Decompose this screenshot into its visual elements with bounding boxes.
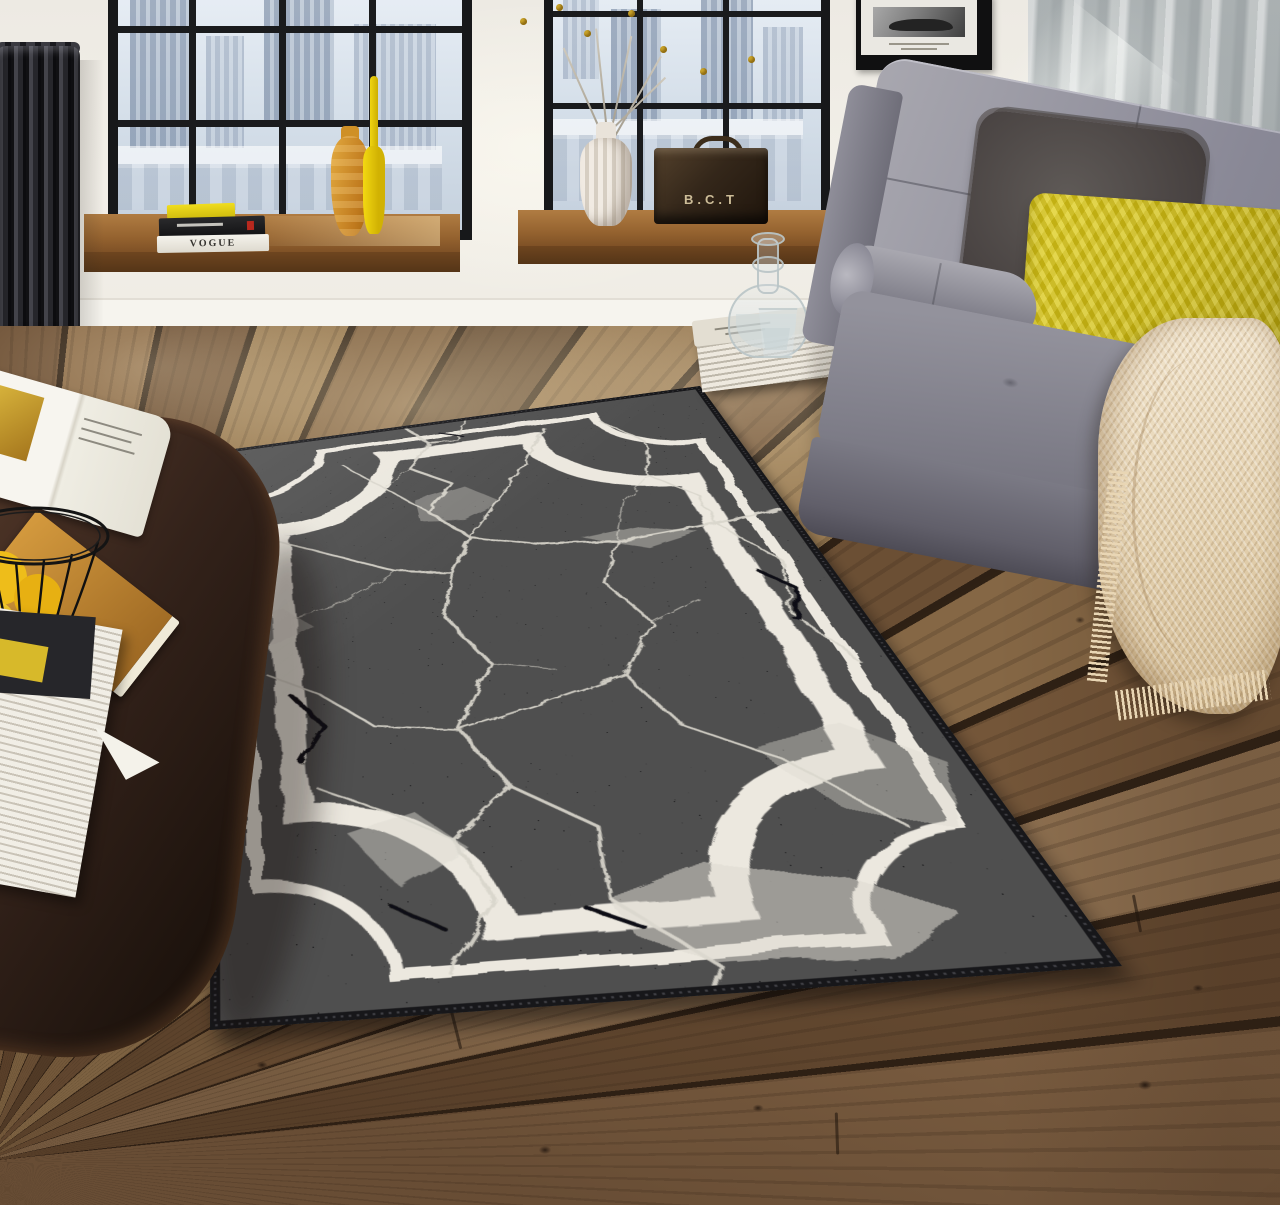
radiator: [0, 46, 80, 352]
yellow-bottle-neck: [370, 76, 378, 152]
window-muntin: [118, 26, 462, 33]
vogue-spine-text: VOGUE: [190, 238, 237, 250]
craspedia-bud: [660, 46, 667, 53]
city-building: [264, 0, 334, 120]
city-building: [206, 36, 244, 148]
box-label-text: B.C.T: [684, 192, 738, 207]
throw-fold: [1132, 358, 1265, 658]
window-muntin: [553, 103, 821, 109]
window-muntin: [279, 0, 286, 230]
glass-water: [762, 328, 790, 350]
decanter-ring: [752, 256, 784, 273]
white-vase: [580, 138, 632, 226]
window-muntin: [637, 0, 643, 219]
window-sill-edge: [518, 246, 844, 264]
vogue-book: VOGUE: [157, 234, 269, 253]
radiator-shadow: [78, 60, 104, 352]
book-spine-mark: [177, 223, 223, 227]
magazine-text-line: [84, 418, 142, 436]
craspedia-bud: [748, 56, 755, 63]
basket-rim: [0, 508, 108, 564]
window-sill-edge: [84, 252, 460, 272]
craspedia-bud: [520, 18, 527, 25]
magazine-photo: [0, 384, 44, 461]
basket-rim-inner: [0, 512, 100, 560]
craspedia-bud: [556, 4, 563, 11]
craspedia-bud: [700, 68, 707, 75]
left-window: [108, 0, 472, 240]
craspedia-bud: [628, 10, 635, 17]
decanter-lip: [751, 232, 785, 246]
vintage-storage-box: B.C.T: [654, 148, 768, 224]
city-building: [354, 24, 436, 150]
throw-blanket: [1098, 318, 1280, 714]
window-muntin: [553, 11, 821, 17]
living-room-photo: VOGUE B.C.T: [0, 0, 1280, 1205]
yellow-bottle: [363, 146, 385, 234]
window-muntin: [118, 120, 462, 127]
window-muntin: [189, 0, 196, 230]
book-spine-red-mark: [247, 221, 254, 230]
craspedia-bud: [584, 30, 591, 37]
